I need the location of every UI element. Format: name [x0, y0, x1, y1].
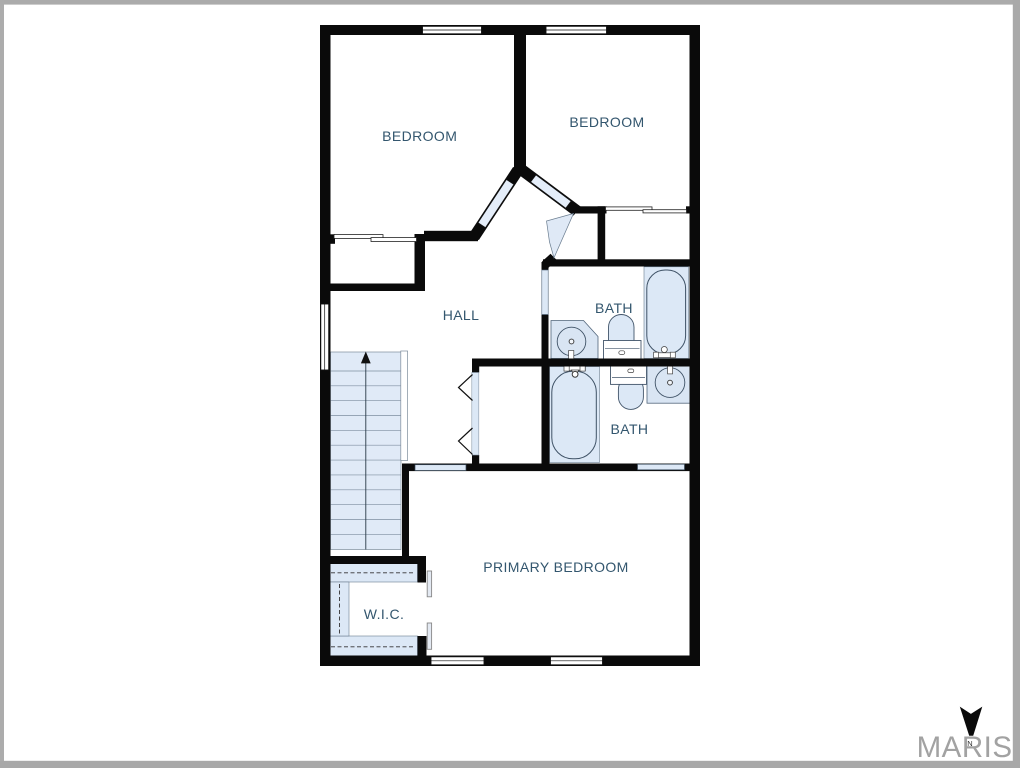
svg-text:W.I.C.: W.I.C. [364, 606, 405, 622]
svg-text:BEDROOM: BEDROOM [569, 114, 644, 130]
svg-text:HALL: HALL [443, 307, 480, 323]
svg-text:BATH: BATH [611, 421, 649, 437]
svg-text:N: N [967, 739, 972, 748]
svg-text:MARIS: MARIS [917, 731, 1013, 764]
svg-text:PRIMARY BEDROOM: PRIMARY BEDROOM [483, 559, 629, 575]
svg-text:BATH: BATH [595, 300, 633, 316]
svg-text:BEDROOM: BEDROOM [382, 128, 457, 144]
